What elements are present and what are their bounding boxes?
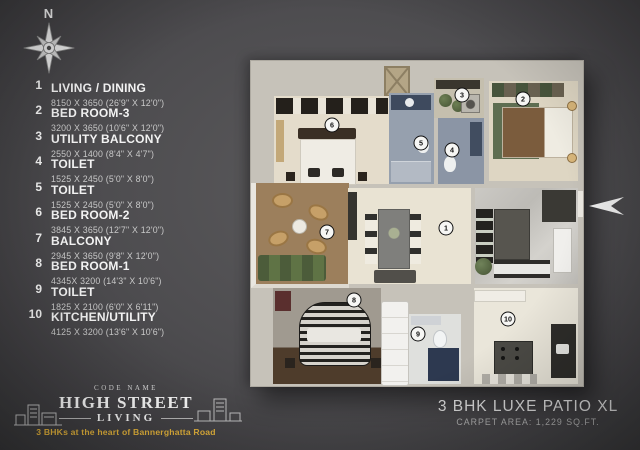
room-bedroom-1: [273, 288, 381, 384]
legend-item: 3UTILITY BALCONY2550 X 1400 (8'4" X 4'7"…: [24, 130, 239, 152]
legend-item: 1LIVING / DINING8150 X 3650 (26'9" X 12'…: [24, 79, 239, 101]
kitchen-cabinets: [474, 290, 526, 302]
legend-item: 7BALCONY2945 X 3650 (9'8" X 12'0"): [24, 232, 239, 254]
legend-item-number: 6: [24, 206, 42, 219]
brand-name-line2: LIVING: [97, 412, 155, 424]
compass-icon: [22, 21, 76, 75]
toilet5-sink: [405, 98, 414, 107]
project-branding: CODE NAME HIGH STREET LIVING 3 BHKs at t…: [16, 384, 236, 437]
balcony-table: [292, 219, 307, 234]
bedroom3-lamp: [567, 101, 577, 111]
legend-item: 4TOILET1525 X 2450 (5'0" X 8'0"): [24, 155, 239, 177]
plan-title-block: 3 BHK LUXE PATIO XL CARPET AREA: 1,229 S…: [428, 398, 628, 427]
code-name-label: CODE NAME: [16, 384, 236, 392]
toilet5-shower: [391, 161, 431, 182]
entry-door-opening: [578, 191, 583, 217]
legend-item-dims: 4125 X 3200 (13'6" X 10'6"): [51, 327, 164, 337]
entry-direction-arrow-icon: [589, 195, 625, 217]
living-tv-unit: [348, 192, 357, 240]
legend-item-number: 10: [24, 308, 42, 321]
kitchen-floor-tiles: [482, 374, 537, 384]
city-skyline-icon: [194, 397, 242, 427]
bedroom2-bed: [300, 139, 356, 185]
bedroom2-pillow: [332, 168, 344, 177]
family-area-plant: [475, 258, 492, 275]
legend-item-number: 2: [24, 104, 42, 117]
room-bedroom-3: [489, 81, 578, 181]
legend-item: 6BED ROOM-23845 X 3650 (12'7" X 12'0"): [24, 206, 239, 228]
legend-item-number: 4: [24, 155, 42, 168]
legend-item-name: UTILITY BALCONY: [51, 132, 162, 146]
dining-chairs-left: [365, 214, 377, 264]
living-sofa: [374, 270, 416, 283]
legend-item-number: 9: [24, 283, 42, 296]
legend-item: 9TOILET1825 X 2100 (6'0" X 6'11"): [24, 283, 239, 305]
dining-chairs-right: [409, 214, 421, 264]
room-toilet-9: [409, 314, 461, 384]
utility-plant: [439, 94, 452, 107]
bedroom1-sheet: [307, 328, 361, 342]
bedroom2-pillow: [308, 168, 320, 177]
bedroom3-lamp: [567, 153, 577, 163]
room-balcony: [251, 183, 349, 288]
room-badge-living-dining: 1: [439, 221, 454, 236]
plan-title: 3 BHK LUXE PATIO XL: [428, 398, 628, 415]
bedroom2-wardrobe: [276, 98, 388, 114]
floor-plan: 1 2 3 4 5 6 7 8 9 10: [250, 60, 584, 387]
wardrobe-unit: [381, 301, 409, 386]
family-area-counter: [542, 190, 576, 222]
carpet-area-label: CARPET AREA: 1,229 SQ.FT.: [428, 417, 628, 427]
balcony-wicker-chair: [304, 237, 328, 257]
legend-item-number: 1: [24, 79, 42, 92]
brand-rule-left: [59, 418, 91, 419]
legend-item-name: TOILET: [51, 285, 95, 299]
bedroom2-nightstand: [358, 172, 367, 181]
legend-item-name: LIVING / DINING: [51, 81, 146, 95]
toilet9-vanity: [411, 316, 441, 325]
bedroom2-side-shelf: [276, 120, 284, 162]
toilet9-wc: [433, 330, 447, 348]
legend-item-name: TOILET: [51, 183, 95, 197]
brand-rule-right: [161, 418, 193, 419]
bedroom2-nightstand: [286, 172, 295, 181]
room-badge-bedroom-2: 6: [325, 118, 340, 133]
room-living-dining: [348, 188, 471, 284]
room-family-area: [475, 188, 578, 284]
legend-item-name: BED ROOM-1: [51, 259, 130, 273]
balcony-wicker-chair: [272, 193, 293, 208]
legend-item-name: TOILET: [51, 157, 95, 171]
family-area-cabinet: [553, 228, 572, 273]
bedroom1-nightstand: [285, 358, 295, 368]
toilet4-vanity: [470, 122, 482, 156]
room-badge-balcony: 7: [320, 225, 335, 240]
legend-item-name: KITCHEN/UTILITY: [51, 310, 156, 324]
balcony-wicker-chair: [266, 228, 291, 249]
legend-item-number: 8: [24, 257, 42, 270]
city-skyline-icon: [14, 401, 62, 429]
legend-item-name: BED ROOM-2: [51, 208, 130, 222]
balcony-planter: [258, 255, 326, 281]
room-badge-toilet-5: 5: [414, 136, 429, 151]
legend-item: 2BED ROOM-33200 X 3650 (10'6" X 12'0"): [24, 104, 239, 126]
room-badge-bedroom-3: 2: [516, 92, 531, 107]
room-legend: 1LIVING / DINING8150 X 3650 (26'9" X 12'…: [24, 79, 239, 334]
dining-table: [378, 209, 410, 269]
compass-rose: N: [20, 6, 78, 80]
room-kitchen-utility: [474, 288, 578, 384]
legend-item: 10KITCHEN/UTILITY4125 X 3200 (13'6" X 10…: [24, 308, 239, 330]
room-badge-utility-balcony: 3: [455, 88, 470, 103]
kitchen-stove-island: [494, 341, 533, 376]
room-badge-bedroom-1: 8: [347, 293, 362, 308]
legend-item-name: BALCONY: [51, 234, 112, 248]
compass-north-label: N: [20, 6, 78, 21]
bedroom3-bed: [502, 107, 573, 158]
legend-item: 5TOILET1525 X 2450 (5'0" X 8'0"): [24, 181, 239, 203]
family-area-bench: [494, 260, 550, 278]
legend-item-number: 7: [24, 232, 42, 245]
family-area-desk: [494, 209, 530, 260]
bedroom1-dresser: [275, 291, 291, 311]
toilet4-wc: [444, 156, 456, 172]
kitchen-sink: [556, 344, 569, 354]
family-area-shelf: [476, 209, 493, 263]
legend-item-number: 5: [24, 181, 42, 194]
bedroom1-nightstand: [371, 358, 381, 368]
toilet9-shower-tiles: [428, 348, 459, 381]
shaft-cross-icon: [386, 68, 408, 95]
brochure-background: { "compass": {"label": "N"}, "legend": {…: [0, 0, 640, 450]
room-bedroom-2: [274, 96, 391, 184]
balcony-wicker-chair: [306, 201, 331, 223]
legend-item-number: 3: [24, 130, 42, 143]
legend-item: 8BED ROOM-14345X 3200 (14'3" X 10'6"): [24, 257, 239, 279]
room-badge-toilet-4: 4: [445, 143, 460, 158]
legend-item-name: BED ROOM-3: [51, 106, 130, 120]
room-badge-toilet-9: 9: [411, 327, 426, 342]
room-badge-kitchen-utility: 10: [501, 312, 516, 327]
